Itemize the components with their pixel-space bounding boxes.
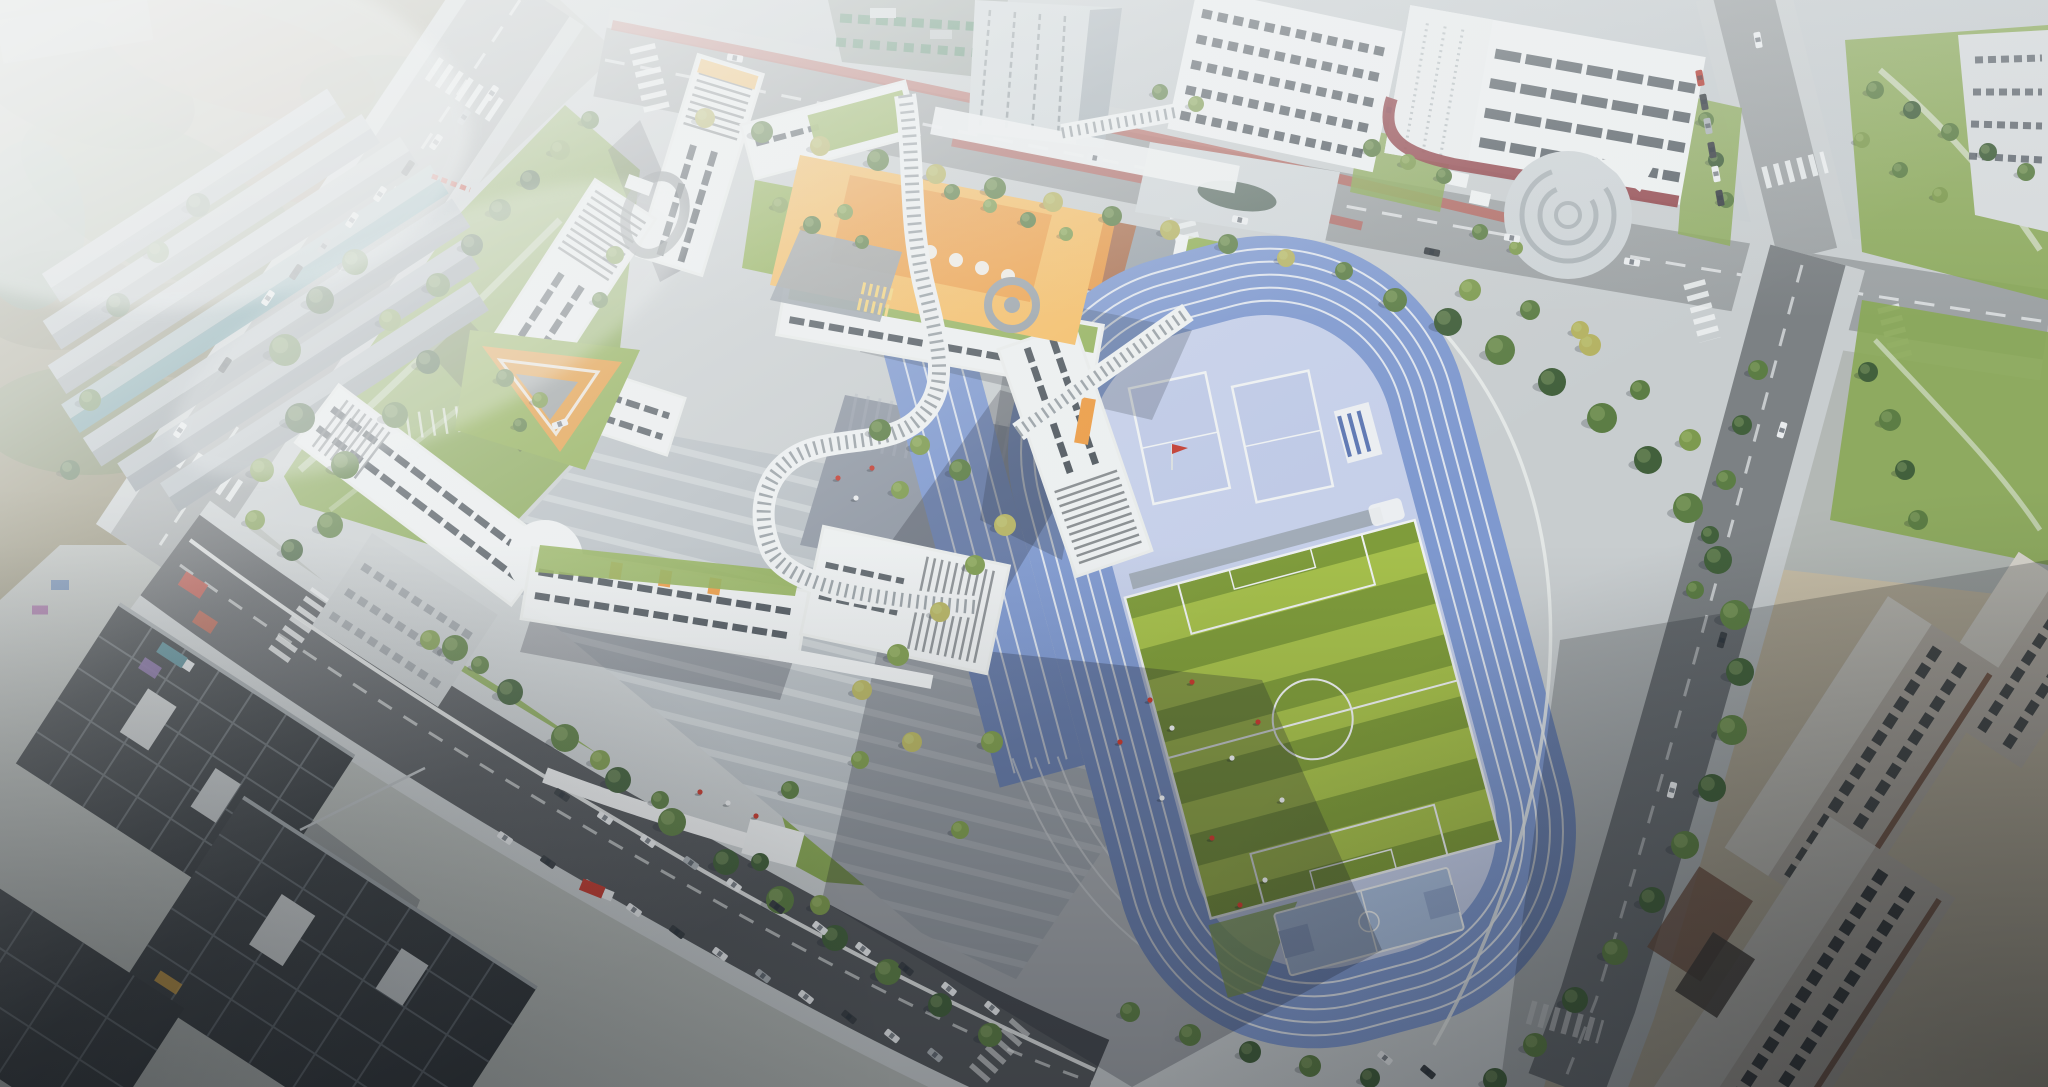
aerial-rendering: Hazy aerial rendering of a modern school… <box>0 0 2048 1087</box>
